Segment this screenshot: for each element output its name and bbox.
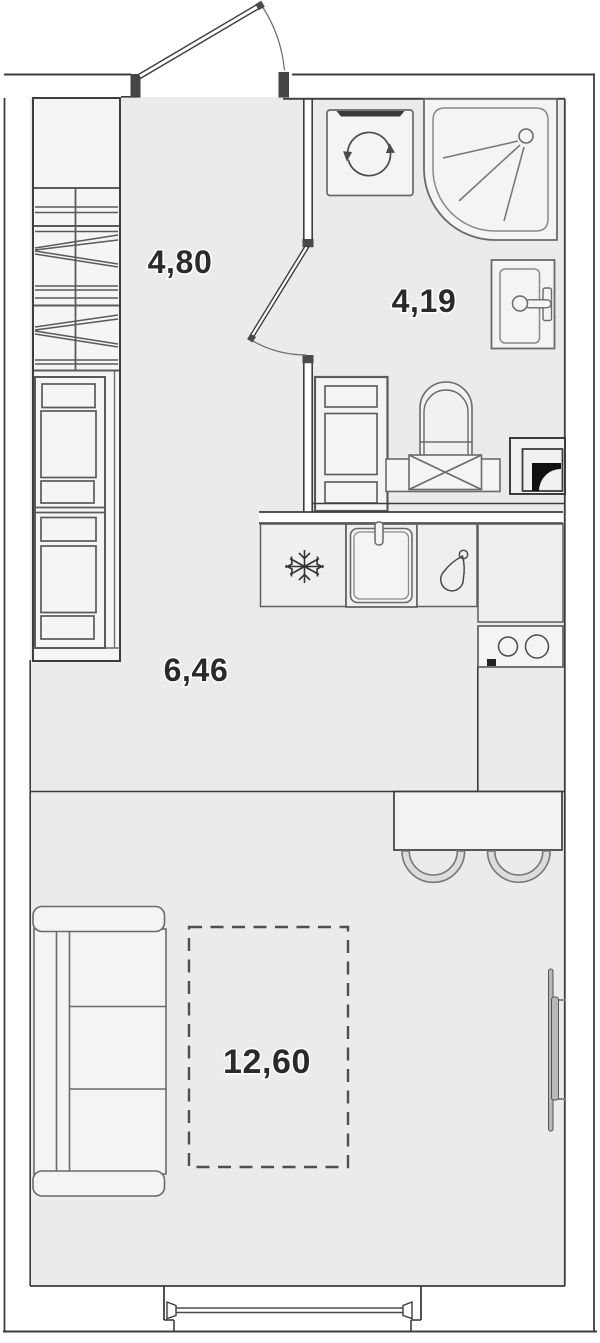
- svg-text:4,19: 4,19: [392, 283, 457, 319]
- svg-text:12,60: 12,60: [223, 1043, 311, 1081]
- svg-text:4,80: 4,80: [148, 244, 213, 280]
- svg-text:6,46: 6,46: [164, 652, 229, 688]
